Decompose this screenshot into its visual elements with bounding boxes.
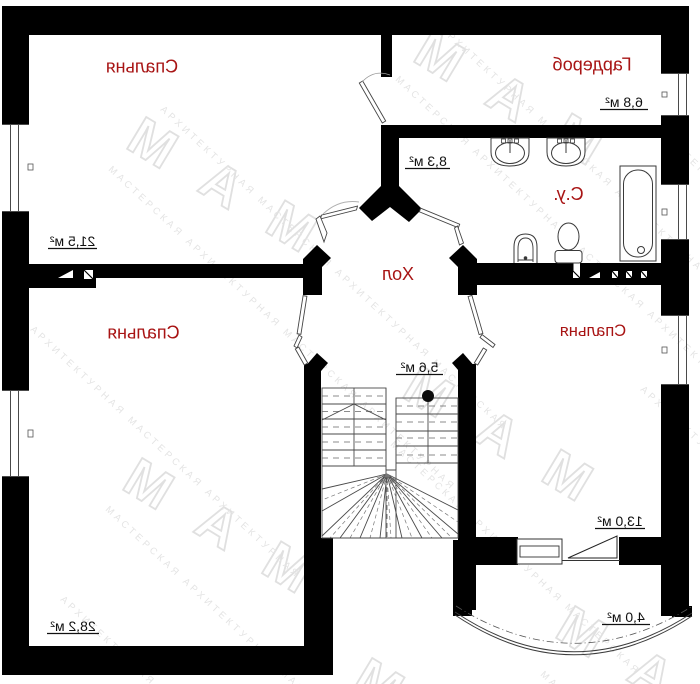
svg-text:Спальня: Спальня [107,323,179,343]
svg-text:21,5 м²: 21,5 м² [49,233,95,249]
svg-text:Спальня: Спальня [560,322,626,340]
svg-text:5,6 м²: 5,6 м² [400,359,438,375]
svg-text:Спальня: Спальня [106,57,178,77]
svg-text:АРХИТЕКТУРНАЯ МАСТЕРСКАЯ АРХИТ: АРХИТЕКТУРНАЯ МАСТЕРСКАЯ АРХИТЕКТУРНАЯ [28,324,303,581]
svg-text:С.у.: С.у. [553,184,583,204]
svg-text:Хол: Хол [382,264,414,284]
svg-text:Гардероб: Гардероб [552,55,631,75]
svg-text:8,3 м²: 8,3 м² [409,153,447,169]
svg-text:4,0 м²: 4,0 м² [607,609,645,625]
svg-text:13,0 м²: 13,0 м² [597,513,643,529]
svg-text:28,2 м²: 28,2 м² [50,618,96,634]
svg-text:МАМ: МАМ [394,355,636,533]
svg-text:6,8 м²: 6,8 м² [605,94,643,110]
